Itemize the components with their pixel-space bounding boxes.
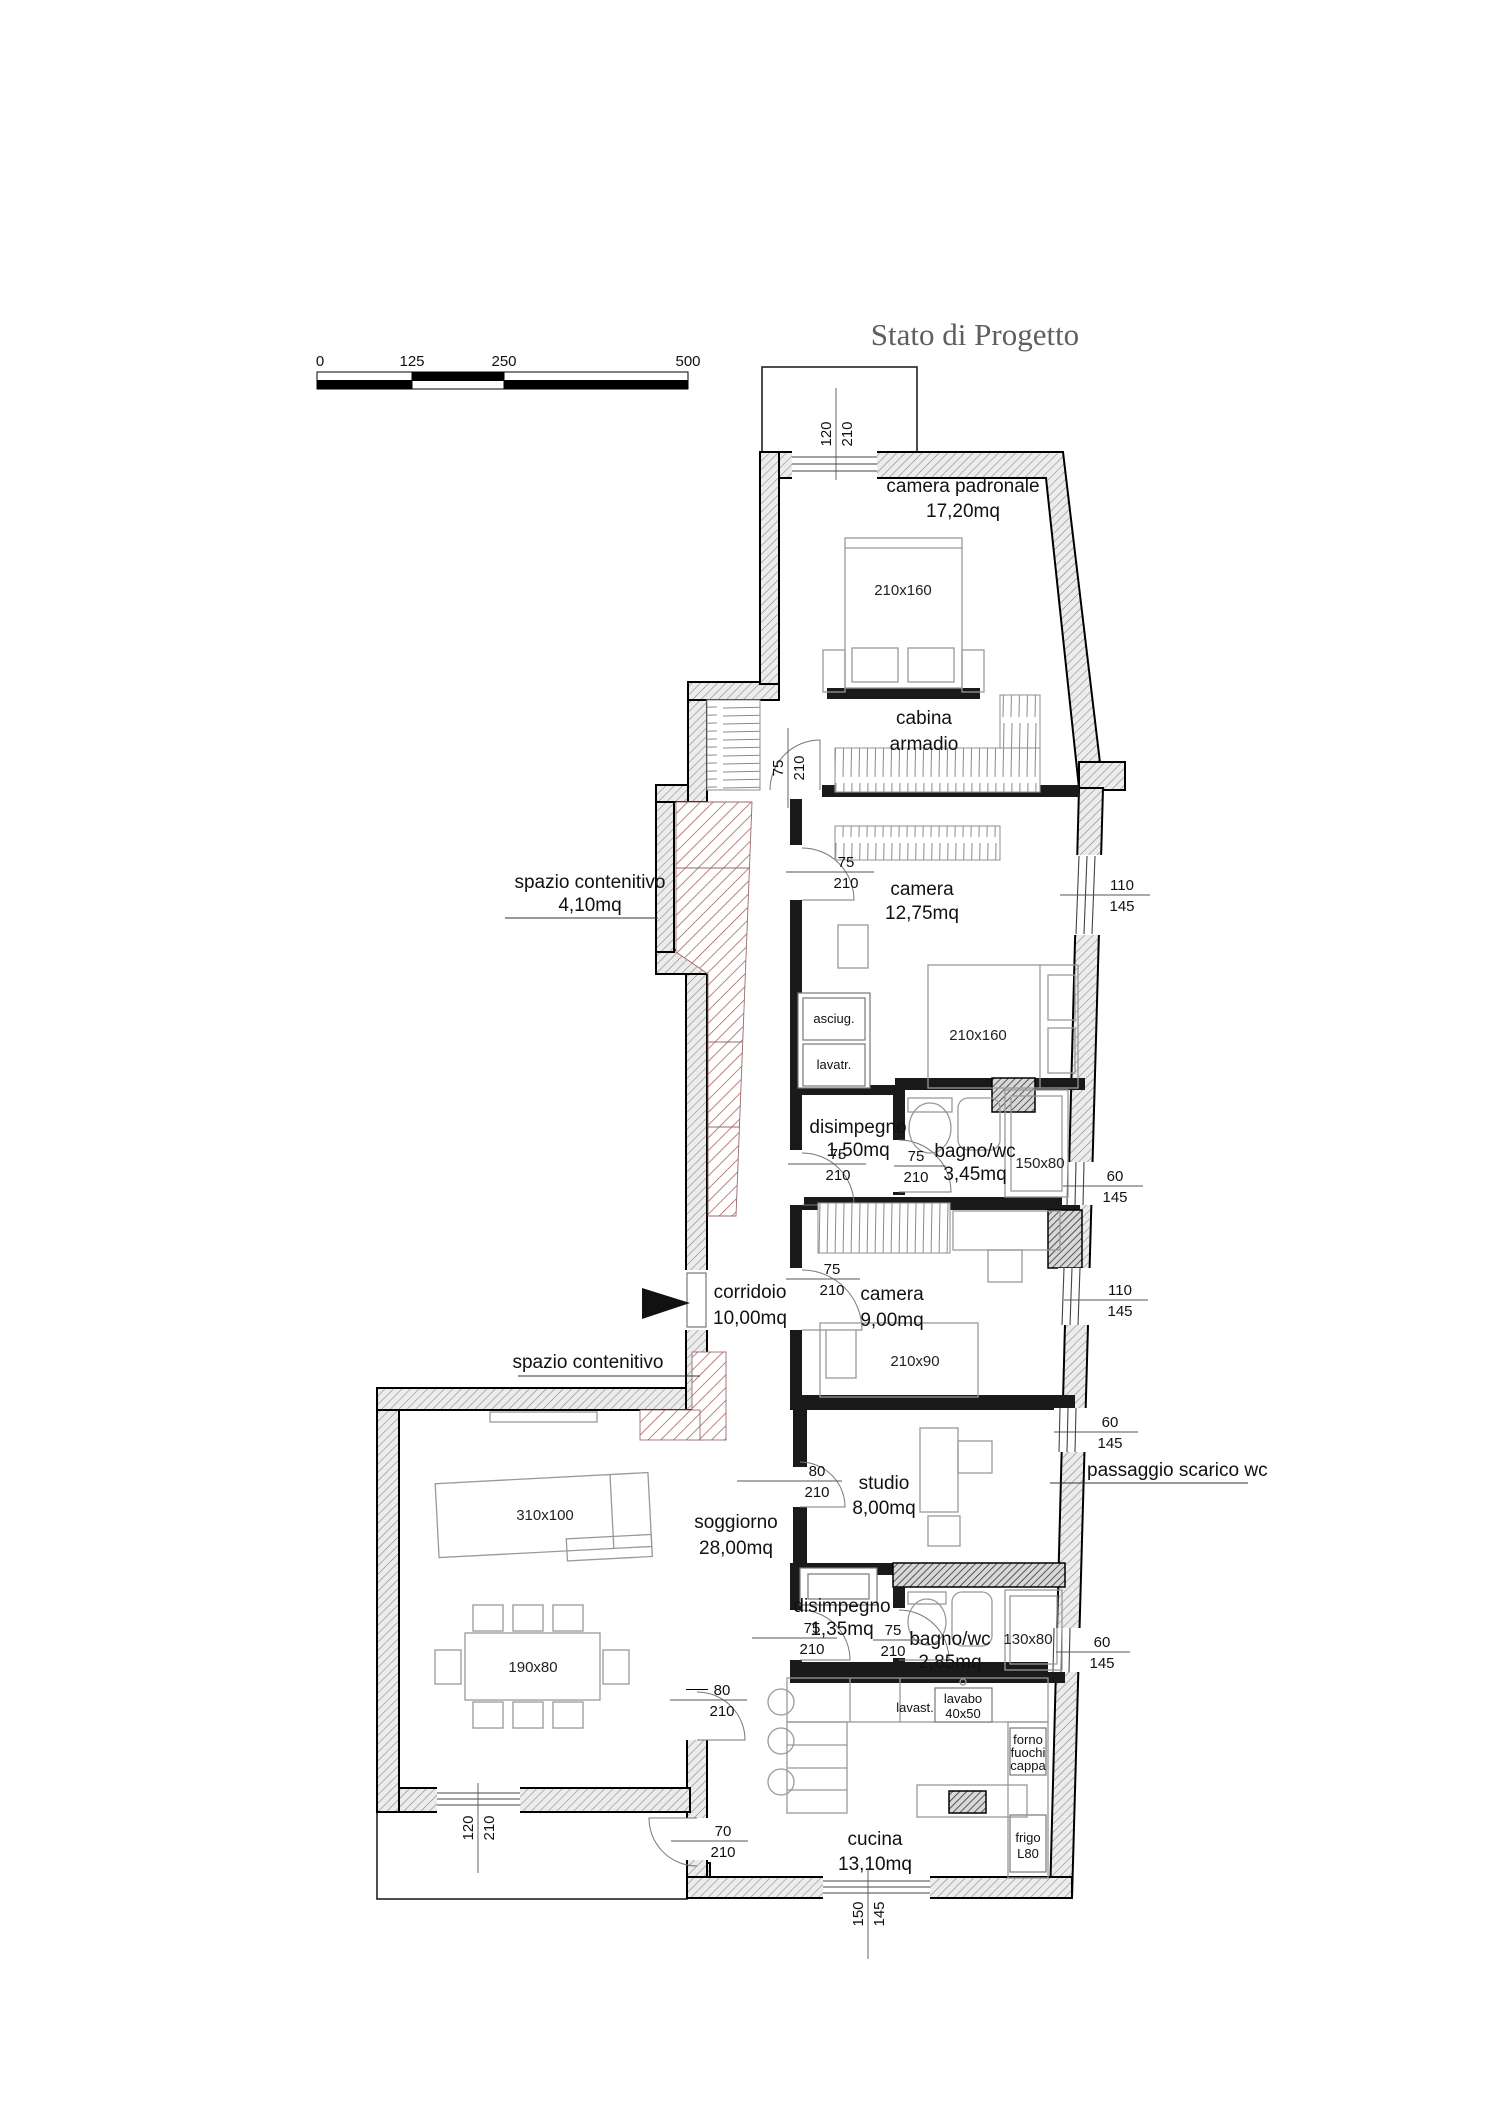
- svg-text:75: 75: [838, 854, 855, 871]
- svg-text:110: 110: [1108, 1282, 1132, 1299]
- svg-text:75: 75: [830, 1146, 847, 1163]
- svg-text:190x80: 190x80: [508, 1659, 557, 1676]
- svg-text:75: 75: [804, 1620, 821, 1637]
- scale-tick-0: 0: [316, 353, 324, 370]
- svg-text:145: 145: [1102, 1189, 1127, 1206]
- svg-text:150: 150: [850, 1901, 867, 1926]
- svg-text:210x160: 210x160: [874, 582, 932, 599]
- svg-text:lavabo: lavabo: [944, 1691, 982, 1706]
- svg-text:cucina: cucina: [848, 1829, 903, 1850]
- svg-text:75: 75: [770, 760, 787, 777]
- svg-text:80: 80: [809, 1463, 826, 1480]
- svg-text:145: 145: [1089, 1655, 1114, 1672]
- svg-text:210: 210: [799, 1641, 824, 1658]
- svg-text:210: 210: [903, 1169, 928, 1186]
- svg-text:3,45mq: 3,45mq: [943, 1164, 1006, 1185]
- svg-text:spazio contenitivo: spazio contenitivo: [514, 872, 665, 893]
- svg-text:40x50: 40x50: [945, 1706, 980, 1721]
- paper-background: [0, 0, 1500, 2121]
- svg-text:disimpegno: disimpegno: [809, 1117, 906, 1138]
- entrance-threshold: [687, 1273, 706, 1327]
- svg-text:corridoio: corridoio: [714, 1282, 787, 1303]
- svg-text:75: 75: [885, 1622, 902, 1639]
- scale-tick-125: 125: [399, 353, 424, 370]
- cabina-wardrobe-right: [1000, 695, 1040, 748]
- camera1-wardrobe: [835, 826, 1000, 860]
- svg-text:60: 60: [1094, 1634, 1111, 1651]
- svg-text:cabina: cabina: [896, 708, 952, 729]
- svg-text:310x100: 310x100: [516, 1507, 574, 1524]
- svg-text:145: 145: [1109, 898, 1134, 915]
- svg-text:210: 210: [481, 1815, 498, 1840]
- svg-text:armadio: armadio: [890, 734, 959, 755]
- svg-text:110: 110: [1110, 877, 1134, 894]
- svg-text:disimpegno: disimpegno: [793, 1596, 890, 1617]
- floor-plan-drawing: Stato di Progetto 0 125 250 500: [0, 0, 1500, 2121]
- svg-text:80: 80: [714, 1682, 731, 1699]
- svg-text:soggiorno: soggiorno: [694, 1512, 777, 1533]
- svg-text:asciug.: asciug.: [813, 1011, 854, 1026]
- svg-text:camera: camera: [860, 1284, 924, 1305]
- svg-text:210: 210: [791, 755, 808, 780]
- svg-text:camera padronale: camera padronale: [886, 476, 1039, 497]
- svg-text:lavatr.: lavatr.: [817, 1057, 852, 1072]
- svg-text:210x160: 210x160: [949, 1027, 1007, 1044]
- svg-text:60: 60: [1102, 1414, 1119, 1431]
- svg-text:frigo: frigo: [1015, 1830, 1040, 1845]
- svg-text:9,00mq: 9,00mq: [860, 1310, 923, 1331]
- svg-text:210: 210: [833, 875, 858, 892]
- svg-text:L80: L80: [1017, 1846, 1039, 1861]
- svg-text:60: 60: [1107, 1168, 1124, 1185]
- svg-text:70: 70: [715, 1823, 732, 1840]
- svg-text:210x90: 210x90: [890, 1353, 939, 1370]
- svg-text:lavast.: lavast.: [896, 1700, 934, 1715]
- svg-text:bagno/wc: bagno/wc: [934, 1141, 1015, 1162]
- svg-text:4,10mq: 4,10mq: [558, 895, 621, 916]
- svg-text:210: 210: [880, 1643, 905, 1660]
- svg-text:cappa: cappa: [1010, 1758, 1046, 1773]
- svg-text:bagno/wc: bagno/wc: [909, 1629, 990, 1650]
- svg-text:studio: studio: [859, 1473, 910, 1494]
- svg-text:13,10mq: 13,10mq: [838, 1854, 912, 1875]
- svg-text:120: 120: [460, 1815, 477, 1840]
- svg-text:75: 75: [908, 1148, 925, 1165]
- svg-text:145: 145: [1097, 1435, 1122, 1452]
- scale-tick-250: 250: [491, 353, 516, 370]
- svg-text:210: 210: [709, 1703, 734, 1720]
- floor-plan-page: Stato di Progetto 0 125 250 500: [0, 0, 1500, 2121]
- island-hob: [949, 1791, 986, 1813]
- svg-text:8,00mq: 8,00mq: [852, 1498, 915, 1519]
- svg-text:2,85mq: 2,85mq: [918, 1652, 981, 1673]
- svg-text:spazio contenitivo: spazio contenitivo: [512, 1352, 663, 1373]
- svg-text:120: 120: [818, 421, 835, 446]
- svg-text:12,75mq: 12,75mq: [885, 903, 959, 924]
- svg-text:75: 75: [824, 1261, 841, 1278]
- bed-bench: [827, 688, 980, 699]
- svg-text:130x80: 130x80: [1003, 1631, 1052, 1648]
- svg-text:145: 145: [1107, 1303, 1132, 1320]
- svg-text:10,00mq: 10,00mq: [713, 1308, 787, 1329]
- svg-text:210: 210: [804, 1484, 829, 1501]
- svg-text:17,20mq: 17,20mq: [926, 501, 1000, 522]
- svg-text:camera: camera: [890, 879, 954, 900]
- svg-text:145: 145: [871, 1901, 888, 1926]
- svg-text:210: 210: [825, 1167, 850, 1184]
- svg-text:210: 210: [710, 1844, 735, 1861]
- svg-text:210: 210: [839, 421, 856, 446]
- scale-tick-500: 500: [675, 353, 700, 370]
- svg-text:210: 210: [819, 1282, 844, 1299]
- svg-text:150x80: 150x80: [1015, 1155, 1064, 1172]
- svg-text:28,00mq: 28,00mq: [699, 1538, 773, 1559]
- svg-text:passaggio scarico wc: passaggio scarico wc: [1087, 1460, 1268, 1481]
- page-title: Stato di Progetto: [871, 317, 1079, 352]
- camera2-wardrobe: [818, 1203, 950, 1253]
- entry-wardrobe: [707, 700, 760, 790]
